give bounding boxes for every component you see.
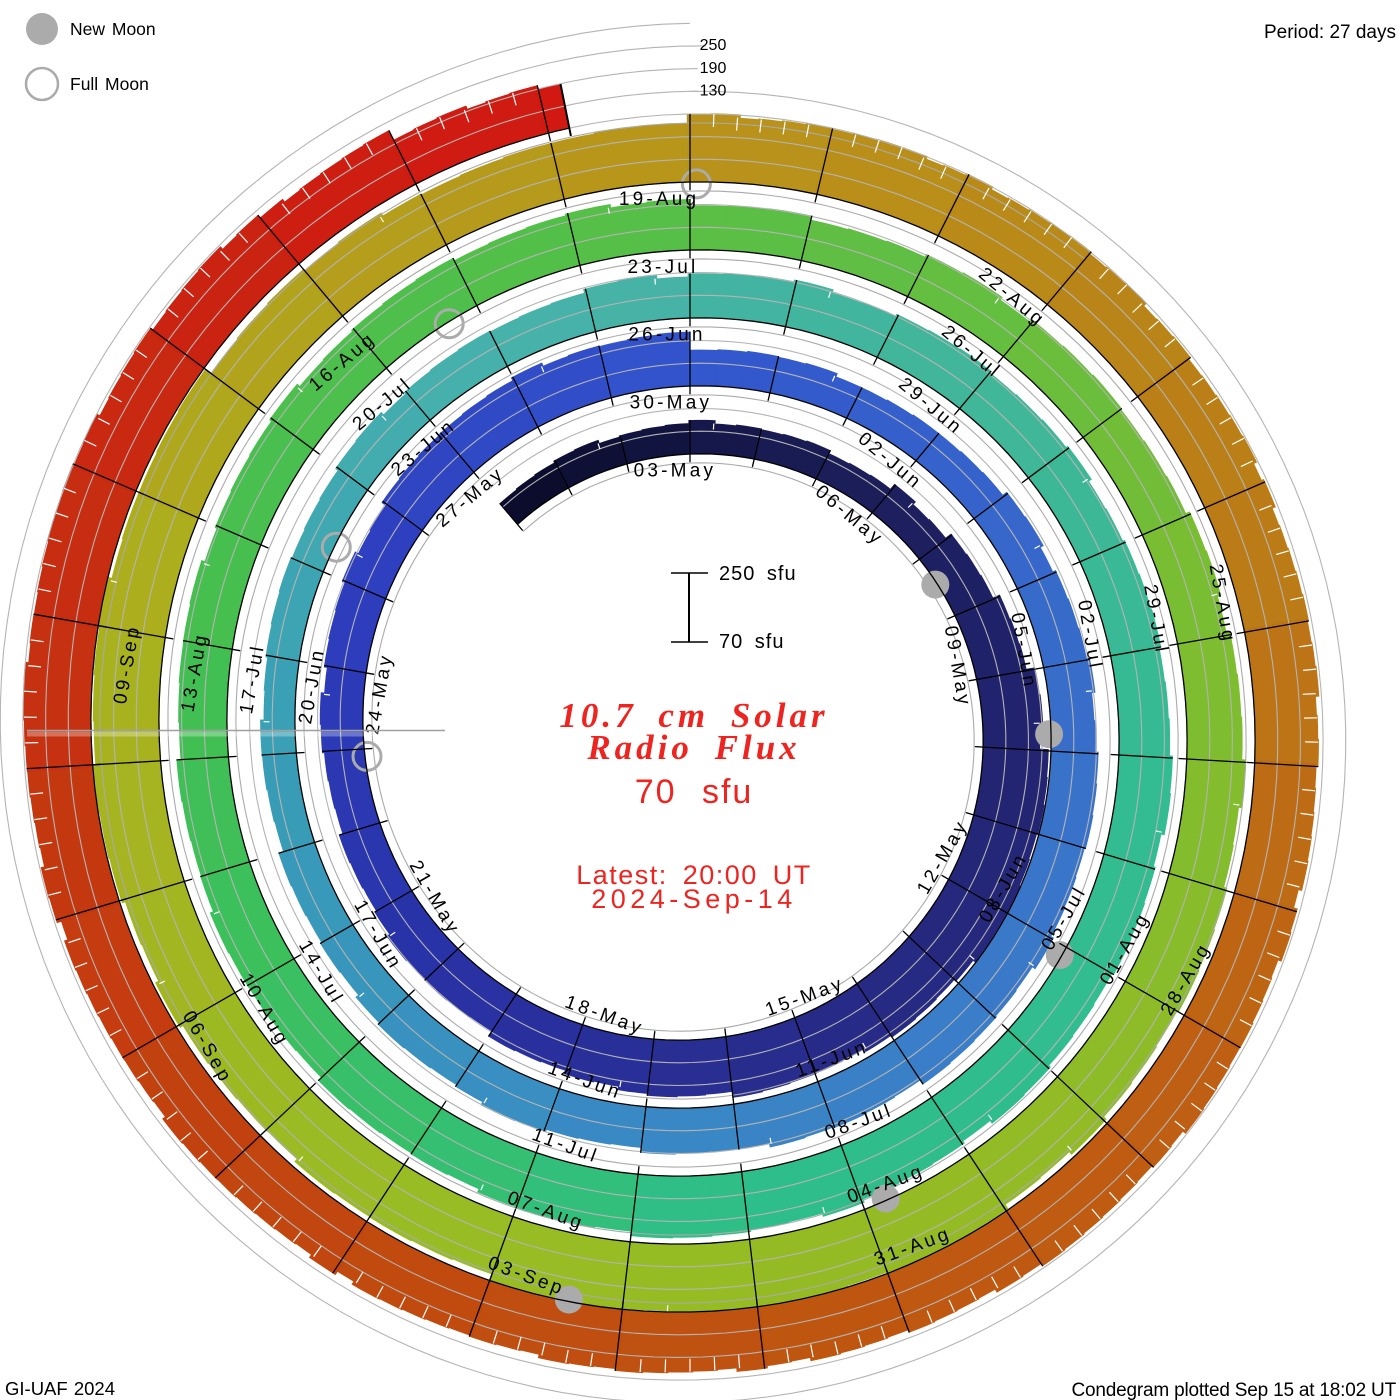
svg-text:03-May: 03-May	[634, 461, 717, 482]
svg-text:30-May: 30-May	[630, 393, 713, 414]
svg-text:70 sfu: 70 sfu	[635, 773, 754, 811]
svg-text:23-Jul: 23-Jul	[628, 257, 699, 278]
svg-text:19-Aug: 19-Aug	[619, 189, 699, 210]
svg-text:70 sfu: 70 sfu	[719, 631, 784, 653]
svg-text:250: 250	[700, 37, 727, 54]
svg-text:190: 190	[700, 60, 727, 77]
svg-text:Period: 27 days: Period: 27 days	[1264, 22, 1396, 43]
svg-text:26-Jun: 26-Jun	[628, 325, 705, 346]
svg-text:2024-Sep-14: 2024-Sep-14	[591, 884, 797, 914]
svg-text:Radio Flux: Radio Flux	[586, 728, 800, 767]
svg-text:GI-UAF 2024: GI-UAF 2024	[5, 1378, 115, 1399]
svg-text:New Moon: New Moon	[70, 19, 156, 39]
svg-text:Condegram plotted Sep 15 at 18: Condegram plotted Sep 15 at 18:02 UT	[1072, 1380, 1397, 1400]
svg-text:130: 130	[700, 83, 727, 100]
svg-text:Full Moon: Full Moon	[70, 74, 149, 94]
svg-text:250 sfu: 250 sfu	[719, 563, 797, 585]
